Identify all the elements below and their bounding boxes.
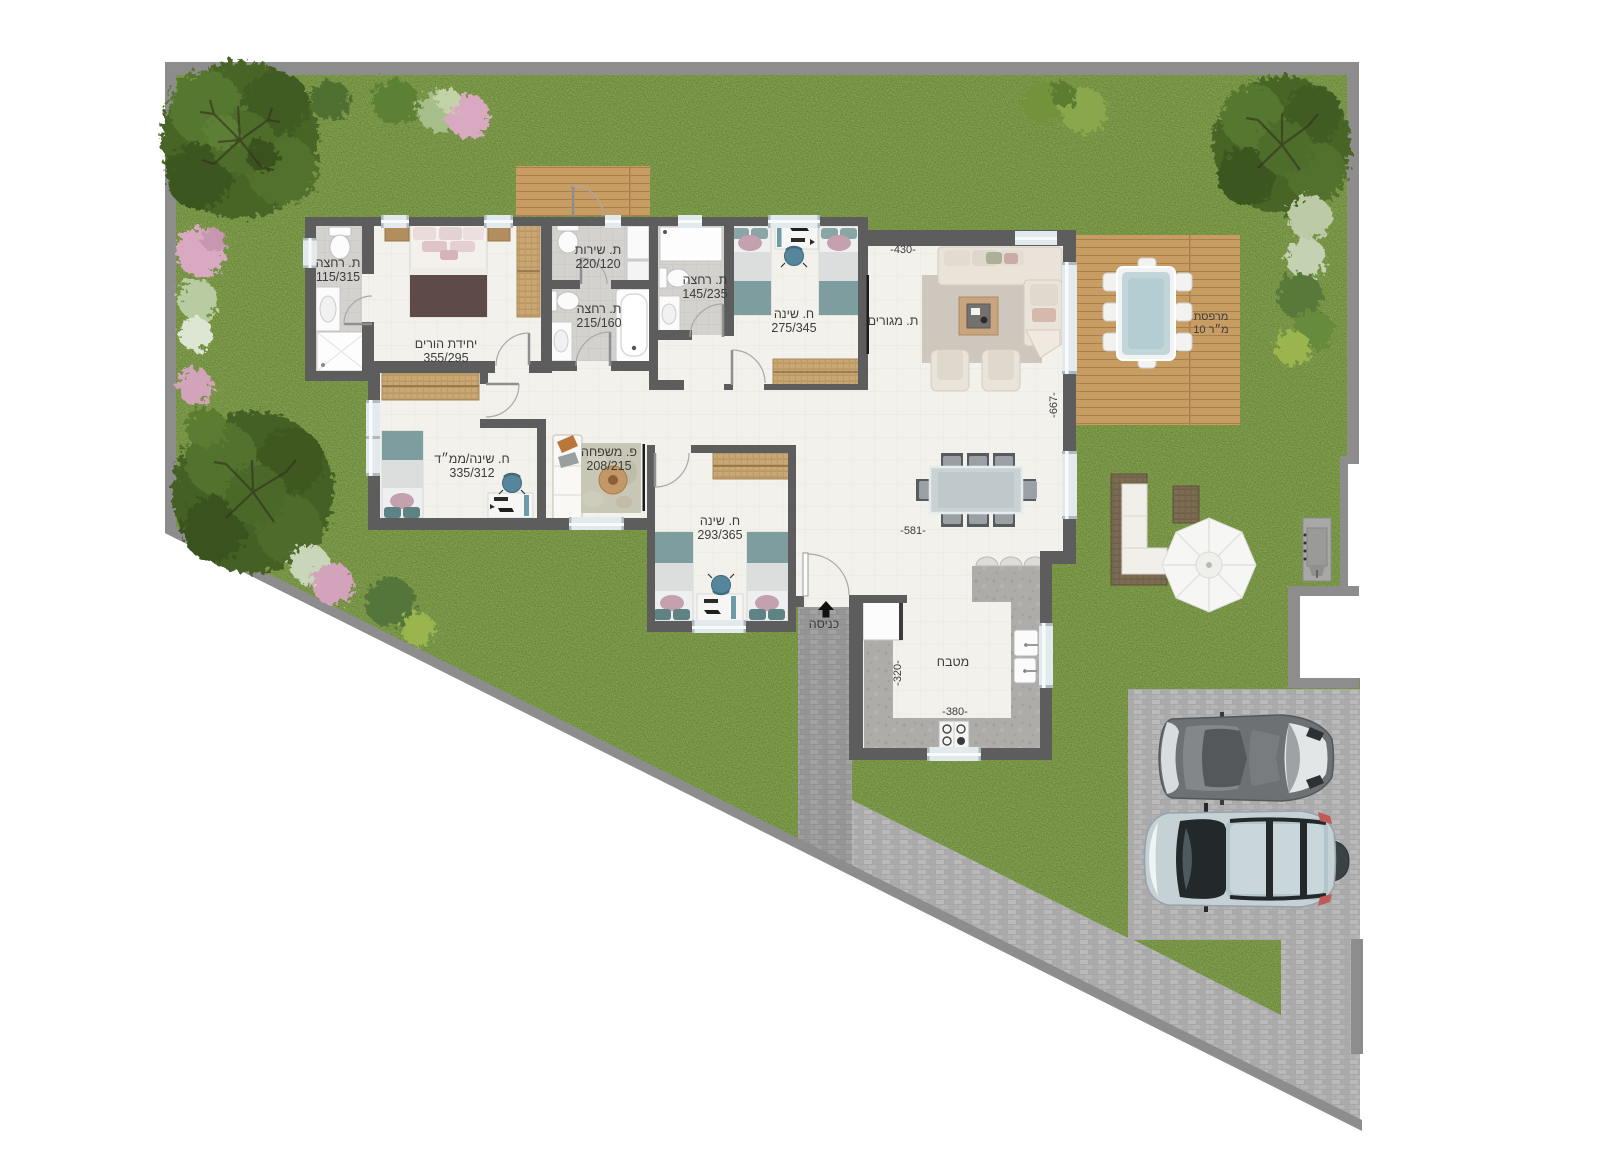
svg-text:יחידת הורים: יחידת הורים (415, 337, 477, 351)
svg-text:ח. שינה: ח. שינה (774, 307, 814, 321)
svg-text:מרפסת: מרפסת (1194, 311, 1229, 323)
svg-text:115/315: 115/315 (316, 270, 360, 284)
svg-text:10 מ״ר: 10 מ״ר (1193, 323, 1228, 336)
svg-text:ת. רחצה: ת. רחצה (683, 273, 728, 287)
svg-text:פ. משפחה: פ. משפחה (581, 445, 637, 459)
svg-text:מטבח: מטבח (937, 655, 969, 669)
svg-text:-581-: -581- (900, 525, 926, 537)
svg-text:כניסה: כניסה (809, 617, 839, 631)
svg-text:215/160: 215/160 (576, 316, 621, 330)
svg-text:ת. רחצה: ת. רחצה (316, 256, 361, 270)
svg-text:355/295: 355/295 (423, 351, 468, 365)
svg-text:293/365: 293/365 (697, 528, 742, 542)
svg-text:ח. שינה/ממ״ד: ח. שינה/ממ״ד (434, 452, 509, 466)
svg-text:ח. שינה: ח. שינה (700, 514, 740, 528)
svg-text:275/345: 275/345 (771, 321, 816, 335)
svg-text:208/215: 208/215 (586, 459, 631, 473)
svg-text:335/312: 335/312 (449, 466, 494, 480)
svg-text:220/120: 220/120 (575, 257, 620, 271)
svg-text:145/235: 145/235 (682, 287, 727, 301)
svg-text:-430-: -430- (890, 244, 916, 256)
svg-text:-667-: -667- (1048, 392, 1060, 418)
svg-text:-380-: -380- (942, 706, 968, 718)
svg-text:ת. מגורים: ת. מגורים (868, 314, 919, 328)
svg-text:ת. שירות: ת. שירות (575, 243, 622, 257)
svg-text:-320-: -320- (892, 660, 904, 686)
svg-text:ת. רחצה: ת. רחצה (577, 302, 622, 316)
